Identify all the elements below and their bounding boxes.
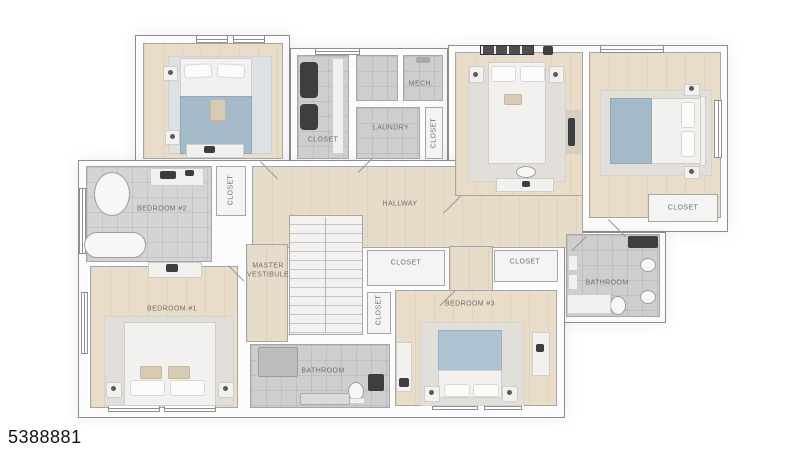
toilet: [610, 296, 626, 315]
towel-shelf: [368, 374, 384, 391]
staircase-divider: [325, 217, 326, 333]
window: [81, 292, 88, 354]
lamp: [507, 390, 512, 395]
room-label-laundry: LAUNDRY: [373, 125, 409, 134]
bathtub: [84, 232, 146, 258]
skylight-window: [480, 45, 534, 55]
listing-id: 5388881: [8, 427, 82, 448]
lamp: [473, 72, 478, 77]
dresser: [186, 144, 244, 158]
closet-unit: [300, 62, 318, 98]
vestibule-small-floor: [356, 55, 398, 101]
window: [196, 35, 228, 43]
shower-pan: [300, 393, 350, 405]
room-label-hallway: HALLWAY: [383, 201, 418, 210]
bed-pillow: [473, 384, 499, 397]
bed-pillow: [681, 131, 695, 157]
room-label-bedroom3: BEDROOM #3: [445, 301, 495, 310]
window: [543, 46, 553, 55]
headboard: [700, 96, 706, 166]
vanity-item: [160, 171, 176, 179]
dresser-item: [166, 264, 178, 272]
bathroom-counter: [628, 236, 658, 248]
desk: [532, 332, 550, 376]
sink: [640, 290, 656, 304]
lamp: [553, 72, 558, 77]
bed-pillow: [444, 384, 470, 397]
room-label-closet-top: CLOSET: [308, 137, 338, 146]
window: [714, 100, 722, 158]
lamp: [223, 386, 228, 391]
lamp: [429, 390, 434, 395]
chair: [516, 166, 536, 178]
window: [315, 48, 360, 55]
room-label-bathroom-right: BATHROOM: [585, 280, 628, 289]
room-label-closet-top-right: CLOSET: [668, 205, 698, 214]
bathtub: [567, 294, 611, 314]
lamp: [689, 169, 694, 174]
sink: [640, 258, 656, 272]
bed-pillow: [184, 63, 213, 78]
closet-unit: [300, 104, 318, 130]
corridor-floor: [449, 246, 493, 294]
desk-item: [522, 181, 530, 187]
room-label-closet-mid: CLOSET: [391, 260, 421, 269]
shower-unit: [258, 347, 298, 377]
staircase: [289, 215, 363, 335]
bed-pillow: [130, 380, 165, 396]
wall-sink: [568, 274, 578, 290]
lamp: [111, 386, 116, 391]
wall-sink: [568, 255, 578, 271]
room-label-bedroom1: BEDROOM #1: [147, 306, 197, 315]
bed-blanket: [610, 98, 652, 164]
room-label-closet-bed2: CLOSET: [228, 175, 235, 205]
chair: [399, 378, 409, 387]
ceiling-fixture: [416, 57, 430, 63]
dresser-item: [204, 146, 215, 153]
room-label-master-vestibule: MASTER VESTIBULE: [245, 262, 291, 280]
bed-pillow: [681, 102, 695, 128]
room-label-bathroom-bottom: BATHROOM: [301, 368, 344, 377]
room-label-bedroom2: BEDROOM #2: [137, 206, 187, 215]
window: [600, 45, 664, 53]
bed-pillow: [170, 380, 205, 396]
bed-cushion: [504, 94, 522, 105]
room-label-closet-laundry: CLOSET: [431, 118, 438, 148]
vestibule-floor: [246, 244, 288, 342]
bed-pillow: [217, 63, 246, 78]
floor-plan: CLOSET MECH. LAUNDRY CLOSET CLOSET BEDRO…: [0, 0, 800, 456]
lamp: [689, 86, 694, 91]
lamp: [170, 134, 175, 139]
desk-item: [536, 344, 544, 352]
headboard: [438, 330, 502, 372]
lamp: [168, 70, 173, 75]
bed-cushion: [210, 99, 226, 121]
vanity: [150, 168, 204, 186]
bed-pillow: [520, 66, 545, 82]
bed-cushion: [140, 366, 162, 379]
window: [233, 35, 265, 43]
tv: [568, 118, 575, 146]
bed-cushion: [168, 366, 190, 379]
vanity-item: [185, 170, 194, 176]
room-label-closet-mid-small: CLOSET: [376, 295, 383, 325]
room-label-mech: MECH.: [409, 81, 434, 90]
bed-pillow: [491, 66, 516, 82]
room-label-closet-right-mid: CLOSET: [510, 259, 540, 268]
freestanding-bathtub: [94, 172, 130, 216]
